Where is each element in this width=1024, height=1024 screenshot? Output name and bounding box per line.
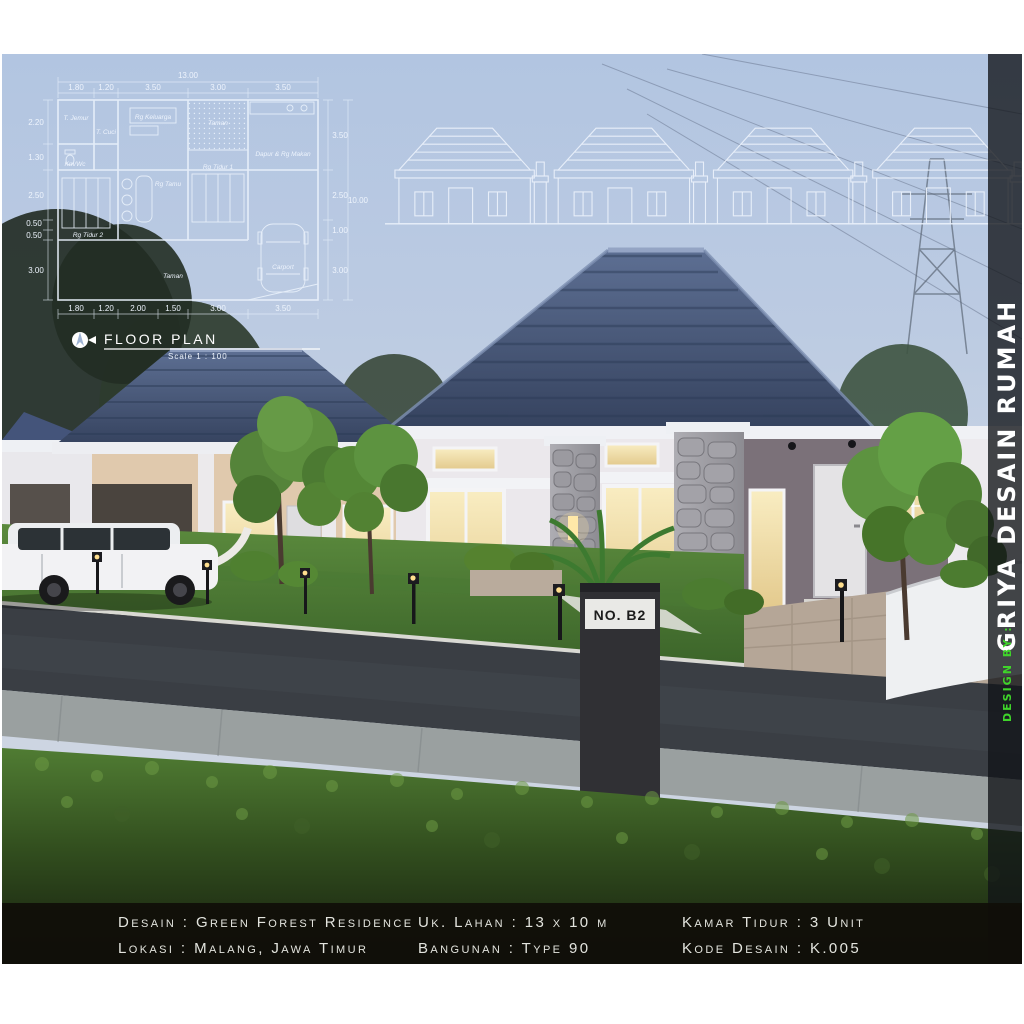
- svg-text:1.50: 1.50: [165, 304, 181, 313]
- svg-text:Taman: Taman: [163, 273, 183, 280]
- planter-box: [470, 570, 562, 596]
- svg-text:3.50: 3.50: [275, 83, 291, 92]
- info-lokasi: Lokasi : Malang, Jawa Timur: [118, 936, 413, 962]
- info-bangunan: Bangunan : Type 90: [418, 936, 609, 962]
- svg-text:Taman: Taman: [208, 120, 228, 127]
- elevation-drawing: [385, 112, 1022, 242]
- svg-text:2.00: 2.00: [130, 304, 146, 313]
- svg-text:0.50: 0.50: [26, 231, 42, 240]
- house-number-text: NO. B2: [594, 607, 647, 623]
- floor-plan-title: FLOOR PLAN: [104, 331, 218, 347]
- svg-text:2.50: 2.50: [28, 191, 44, 200]
- svg-text:3.50: 3.50: [332, 131, 348, 140]
- svg-text:3.00: 3.00: [332, 266, 348, 275]
- info-col-size: Uk. Lahan : 13 x 10 m Bangunan : Type 90: [418, 910, 609, 962]
- info-col-spec: Kamar Tidur : 3 Unit Kode Desain : K.005: [682, 910, 865, 962]
- svg-text:Rg Tidur 2: Rg Tidur 2: [73, 232, 104, 239]
- svg-text:T. Cuci: T. Cuci: [96, 129, 117, 136]
- design-by-vertical-text: DESIGN BY :: [1001, 625, 1014, 722]
- svg-text:3.00: 3.00: [28, 266, 44, 275]
- info-bar: Desain : Green Forest Residence Lokasi :…: [2, 903, 1022, 964]
- svg-text:3.00: 3.00: [210, 83, 226, 92]
- svg-text:Km/Wc: Km/Wc: [65, 161, 87, 168]
- svg-text:1.00: 1.00: [332, 226, 348, 235]
- svg-text:1.80: 1.80: [68, 304, 84, 313]
- svg-text:2.20: 2.20: [28, 118, 44, 127]
- floor-plan-scale: Scale 1 : 100: [168, 352, 228, 361]
- kitchen-counter-icon: [250, 102, 314, 114]
- svg-text:Rg Keluarga: Rg Keluarga: [135, 114, 172, 121]
- svg-text:Carport: Carport: [272, 264, 295, 271]
- svg-text:3.50: 3.50: [275, 304, 291, 313]
- presentation-image: NO. B2: [0, 0, 1024, 1024]
- info-kamar: Kamar Tidur : 3 Unit: [682, 910, 865, 936]
- svg-text:Dapur & Rg Makan: Dapur & Rg Makan: [255, 151, 311, 158]
- info-col-project: Desain : Green Forest Residence Lokasi :…: [118, 910, 413, 962]
- brand-vertical-text: GRIYA DESAIN RUMAH: [993, 299, 1021, 652]
- car-icon: [258, 224, 308, 292]
- svg-text:2.50: 2.50: [332, 191, 348, 200]
- svg-text:1.20: 1.20: [98, 304, 114, 313]
- bathtub-icon: [136, 176, 152, 222]
- svg-text:10.00: 10.00: [348, 196, 368, 205]
- svg-text:1.20: 1.20: [98, 83, 114, 92]
- svg-text:T. Jemur: T. Jemur: [63, 115, 89, 122]
- info-kode: Kode Desain : K.005: [682, 936, 865, 962]
- svg-text:13.00: 13.00: [178, 71, 199, 80]
- svg-text:1.80: 1.80: [68, 83, 84, 92]
- svg-text:3.50: 3.50: [145, 83, 161, 92]
- floor-plan-title-block: FLOOR PLAN Scale 1 : 100: [72, 331, 320, 361]
- house-number-sign: NO. B2: [580, 583, 660, 800]
- svg-text:1.30: 1.30: [28, 153, 44, 162]
- svg-text:3.00: 3.00: [210, 304, 226, 313]
- svg-text:Rg Tidur 1: Rg Tidur 1: [203, 164, 234, 171]
- main-roof: [386, 250, 876, 430]
- svg-text:0.50: 0.50: [26, 219, 42, 228]
- info-lahan: Uk. Lahan : 13 x 10 m: [418, 910, 609, 936]
- svg-text:Rg Tamu: Rg Tamu: [155, 181, 182, 188]
- floor-plan-drawing: 13.00 1.80 1.20 3.50 3.00 3.50 1.80 1.20…: [18, 62, 368, 362]
- render-photo: NO. B2: [2, 54, 1022, 964]
- info-desain: Desain : Green Forest Residence: [118, 910, 413, 936]
